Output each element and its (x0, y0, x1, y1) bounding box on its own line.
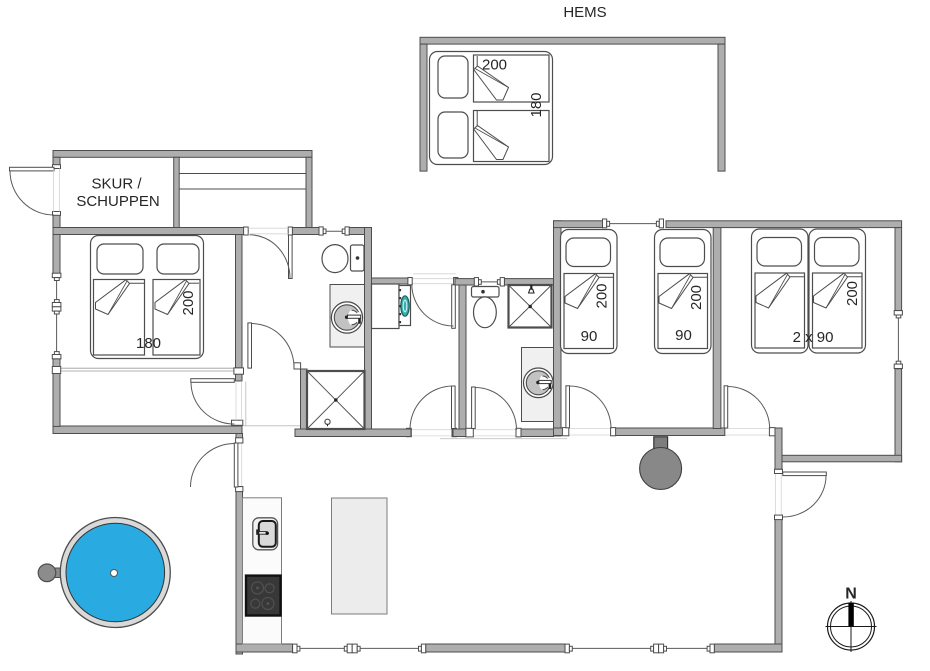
svg-text:200: 200 (844, 281, 861, 306)
svg-text:200: 200 (180, 290, 197, 315)
svg-text:N: N (845, 586, 857, 603)
svg-text:HEMS: HEMS (563, 4, 606, 21)
svg-text:SKUR /: SKUR / (91, 176, 142, 193)
svg-text:2 x 90: 2 x 90 (793, 329, 834, 346)
svg-text:180: 180 (528, 92, 545, 117)
svg-text:200: 200 (594, 283, 611, 308)
svg-text:200: 200 (688, 285, 705, 310)
svg-text:90: 90 (581, 328, 598, 345)
svg-text:200: 200 (482, 57, 507, 74)
svg-text:180: 180 (136, 335, 161, 352)
svg-text:90: 90 (675, 327, 692, 344)
svg-text:SCHUPPEN: SCHUPPEN (76, 193, 159, 210)
